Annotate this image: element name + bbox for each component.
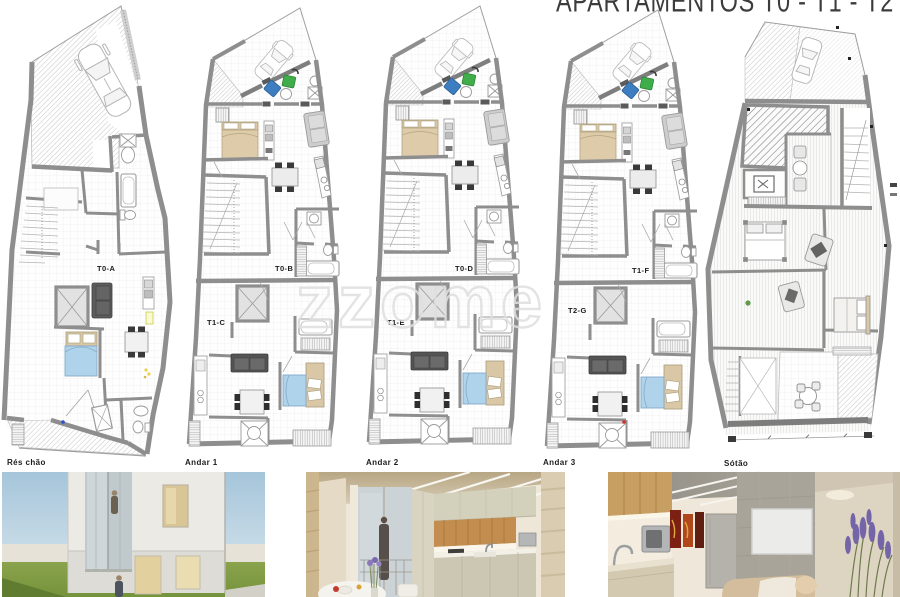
svg-text:Sótão: Sótão	[724, 459, 748, 468]
svg-text:Andar 2: Andar 2	[366, 458, 399, 467]
svg-text:Andar 3: Andar 3	[543, 458, 576, 467]
svg-text:APARTAMENTOS T0 - T1 - T2: APARTAMENTOS T0 - T1 - T2	[556, 0, 894, 19]
svg-text:Rés chão: Rés chão	[7, 458, 46, 467]
svg-text:T1-F: T1-F	[632, 266, 649, 275]
svg-text:T1-C: T1-C	[207, 318, 225, 327]
svg-text:T2-G: T2-G	[568, 306, 587, 315]
svg-text:Andar 1: Andar 1	[185, 458, 218, 467]
svg-text:zzome: zzome	[296, 260, 547, 343]
svg-text:T0-B: T0-B	[275, 264, 293, 273]
svg-text:T0-A: T0-A	[97, 264, 115, 273]
